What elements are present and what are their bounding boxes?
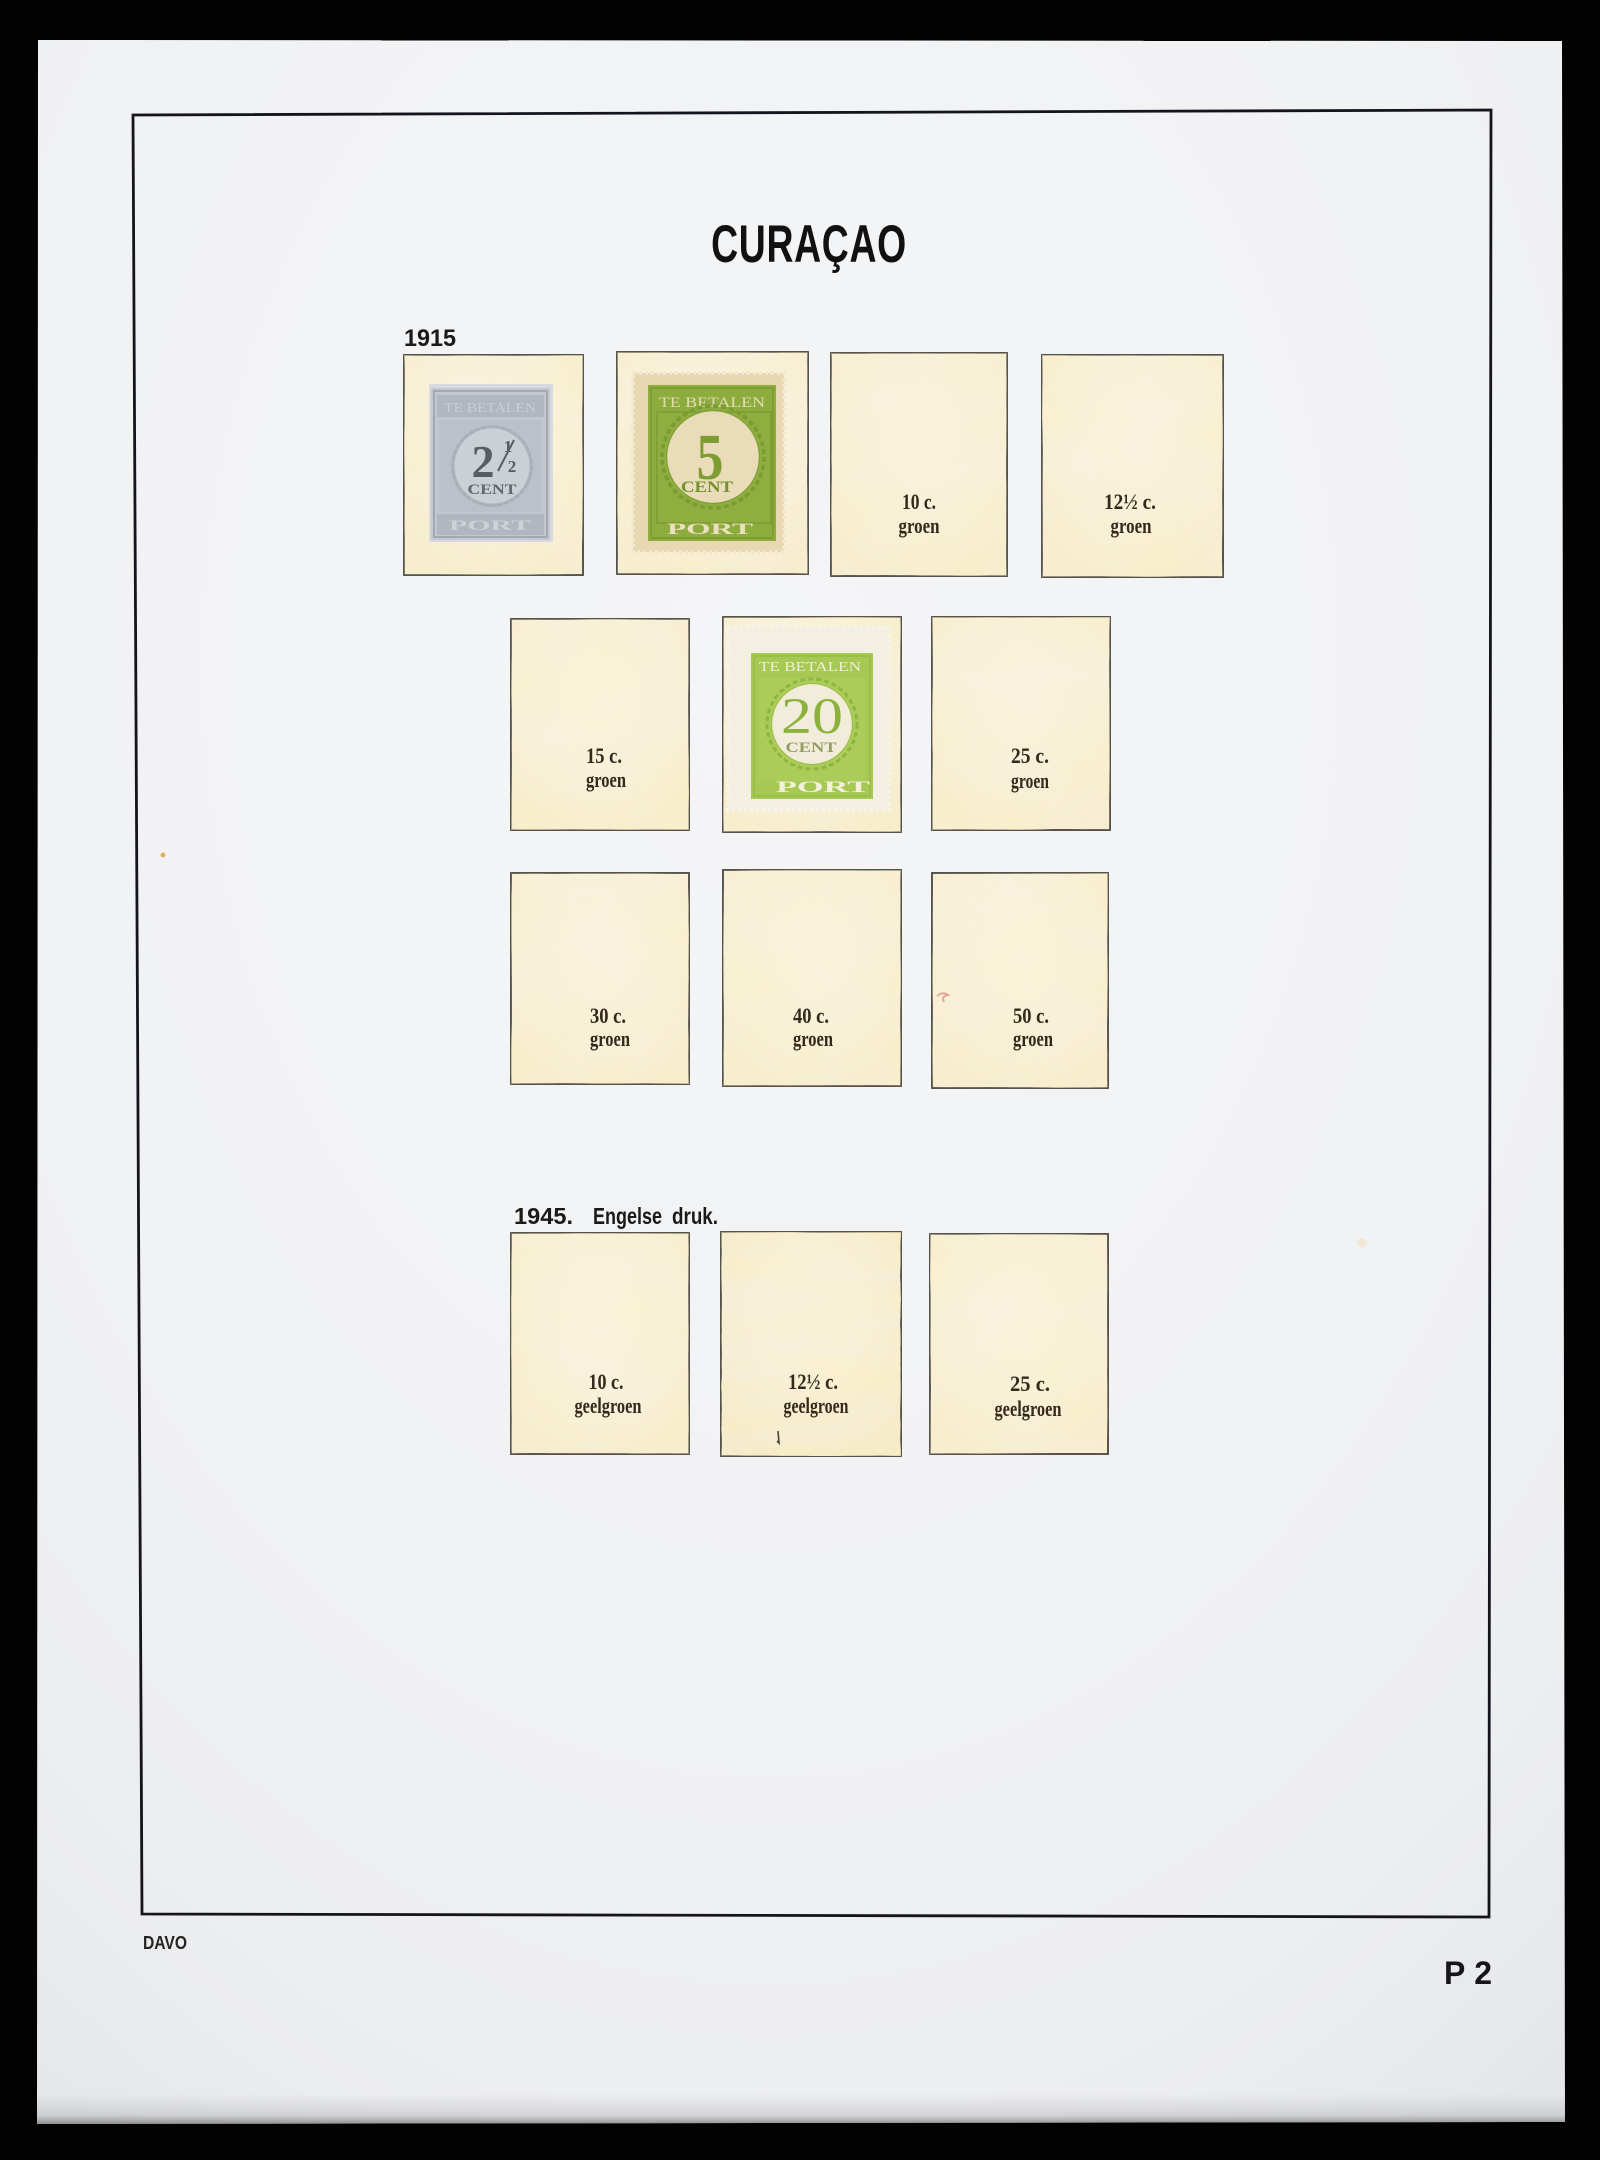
svg-text:DAVO: DAVO xyxy=(143,1933,187,1953)
svg-text:geelgroen: geelgroen xyxy=(784,1393,849,1418)
svg-text:groen: groen xyxy=(793,1026,833,1051)
svg-text:TE BETALEN: TE BETALEN xyxy=(759,660,861,675)
svg-text:25 c.: 25 c. xyxy=(1011,743,1049,768)
svg-text:40 c.: 40 c. xyxy=(793,1003,829,1028)
svg-text:groen: groen xyxy=(899,513,940,538)
svg-text:2: 2 xyxy=(508,457,517,476)
svg-text:CENT: CENT xyxy=(468,482,517,498)
svg-text:25 c.: 25 c. xyxy=(1010,1371,1050,1396)
svg-text:1945.: 1945. xyxy=(514,1203,573,1229)
svg-text:PORT: PORT xyxy=(449,518,531,534)
svg-text:12½ c.: 12½ c. xyxy=(1104,489,1156,514)
svg-text:CURAÇAO: CURAÇAO xyxy=(711,213,907,273)
svg-text:30 c.: 30 c. xyxy=(590,1003,626,1028)
svg-text:TE BETALEN: TE BETALEN xyxy=(444,400,536,415)
svg-text:P 2: P 2 xyxy=(1444,1955,1492,1991)
svg-text:15 c.: 15 c. xyxy=(586,743,622,768)
svg-text:geelgroen: geelgroen xyxy=(575,1393,642,1418)
svg-text:20: 20 xyxy=(781,689,843,745)
svg-text:PORT: PORT xyxy=(776,779,871,796)
svg-text:geelgroen: geelgroen xyxy=(995,1396,1062,1421)
svg-text:10 c.: 10 c. xyxy=(902,489,936,514)
svg-text:druk.: druk. xyxy=(672,1203,718,1229)
svg-text:PORT: PORT xyxy=(667,521,754,538)
svg-text:2: 2 xyxy=(472,436,495,487)
svg-text:groen: groen xyxy=(1111,513,1152,538)
svg-text:Engelse: Engelse xyxy=(593,1203,662,1229)
svg-text:groen: groen xyxy=(590,1026,630,1051)
svg-text:12½ c.: 12½ c. xyxy=(788,1369,838,1394)
svg-text:CENT: CENT xyxy=(681,479,733,496)
svg-text:groen: groen xyxy=(586,767,626,792)
svg-text:groen: groen xyxy=(1013,1026,1053,1051)
svg-text:CENT: CENT xyxy=(786,740,837,756)
svg-text:groen: groen xyxy=(1011,768,1049,793)
svg-text:50 c.: 50 c. xyxy=(1013,1003,1049,1028)
svg-text:TE BETALEN: TE BETALEN xyxy=(659,395,766,411)
svg-text:1915: 1915 xyxy=(404,325,456,352)
svg-text:10 c.: 10 c. xyxy=(589,1369,624,1394)
